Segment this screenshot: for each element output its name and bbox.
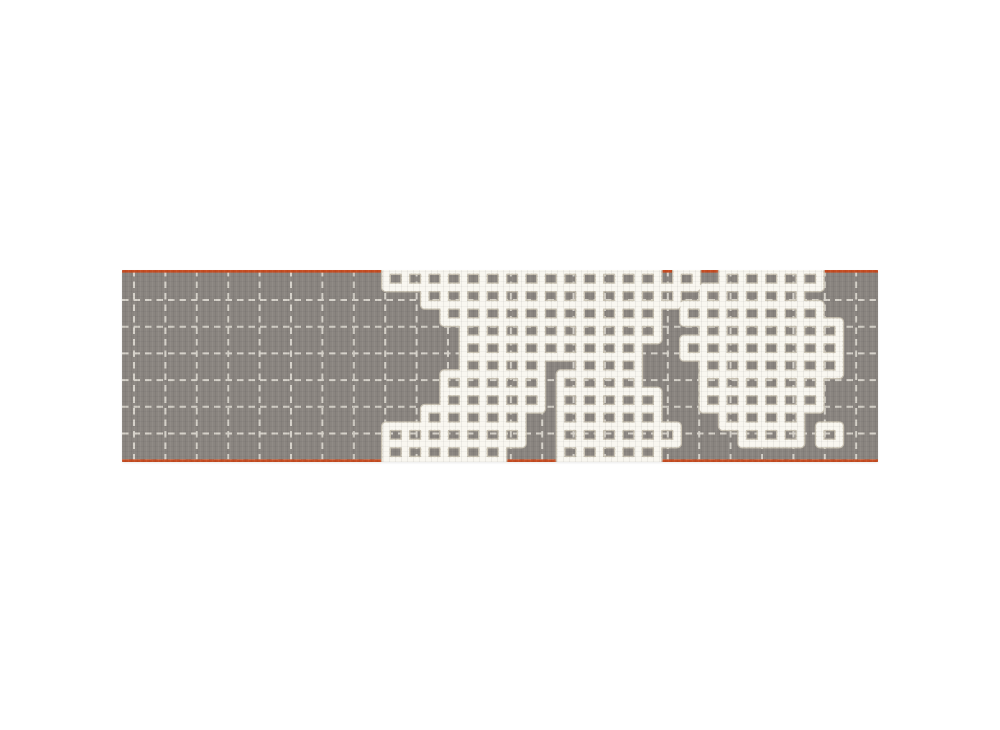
rug: [122, 270, 878, 462]
rug-graphic: [122, 270, 878, 462]
product-photo: [0, 0, 1000, 730]
